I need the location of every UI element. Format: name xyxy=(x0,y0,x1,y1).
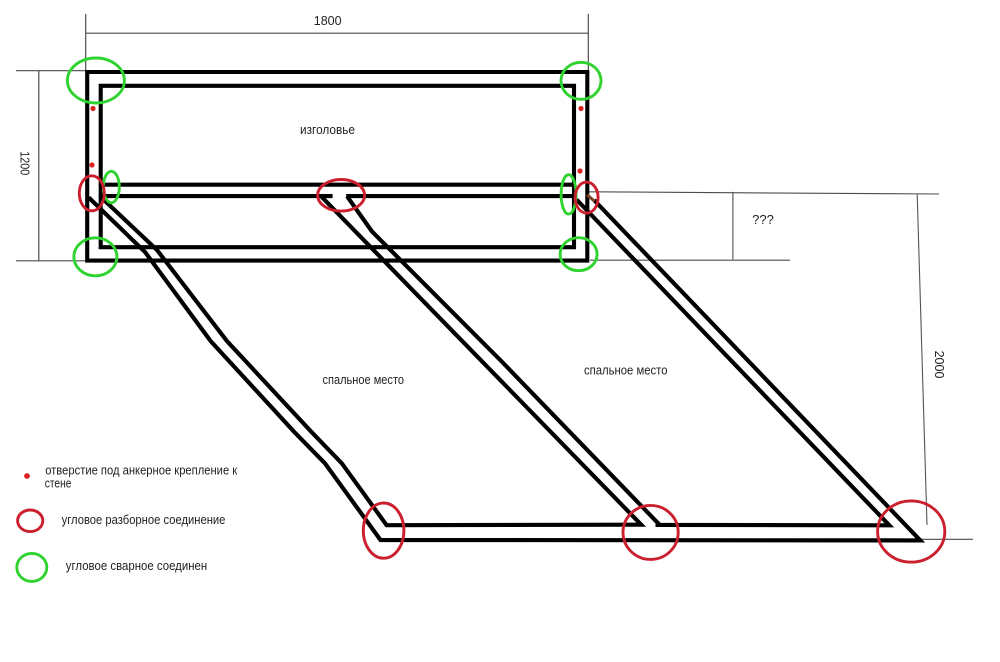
svg-text:угловое сварное соединен: угловое сварное соединен xyxy=(66,559,207,573)
svg-text:изголовье: изголовье xyxy=(300,123,355,137)
svg-text:2000: 2000 xyxy=(932,351,946,379)
svg-text:1200: 1200 xyxy=(18,151,32,175)
svg-text:спальное место: спальное место xyxy=(584,364,668,378)
svg-text:???: ??? xyxy=(752,212,774,227)
svg-text:1800: 1800 xyxy=(314,14,342,28)
svg-text:угловое разборное соединение: угловое разборное соединение xyxy=(62,513,226,527)
svg-text:спальное место: спальное место xyxy=(323,373,405,387)
svg-text:отверстие под анкерное креплен: отверстие под анкерное крепление к xyxy=(45,464,237,478)
svg-text:стене: стене xyxy=(45,476,72,490)
